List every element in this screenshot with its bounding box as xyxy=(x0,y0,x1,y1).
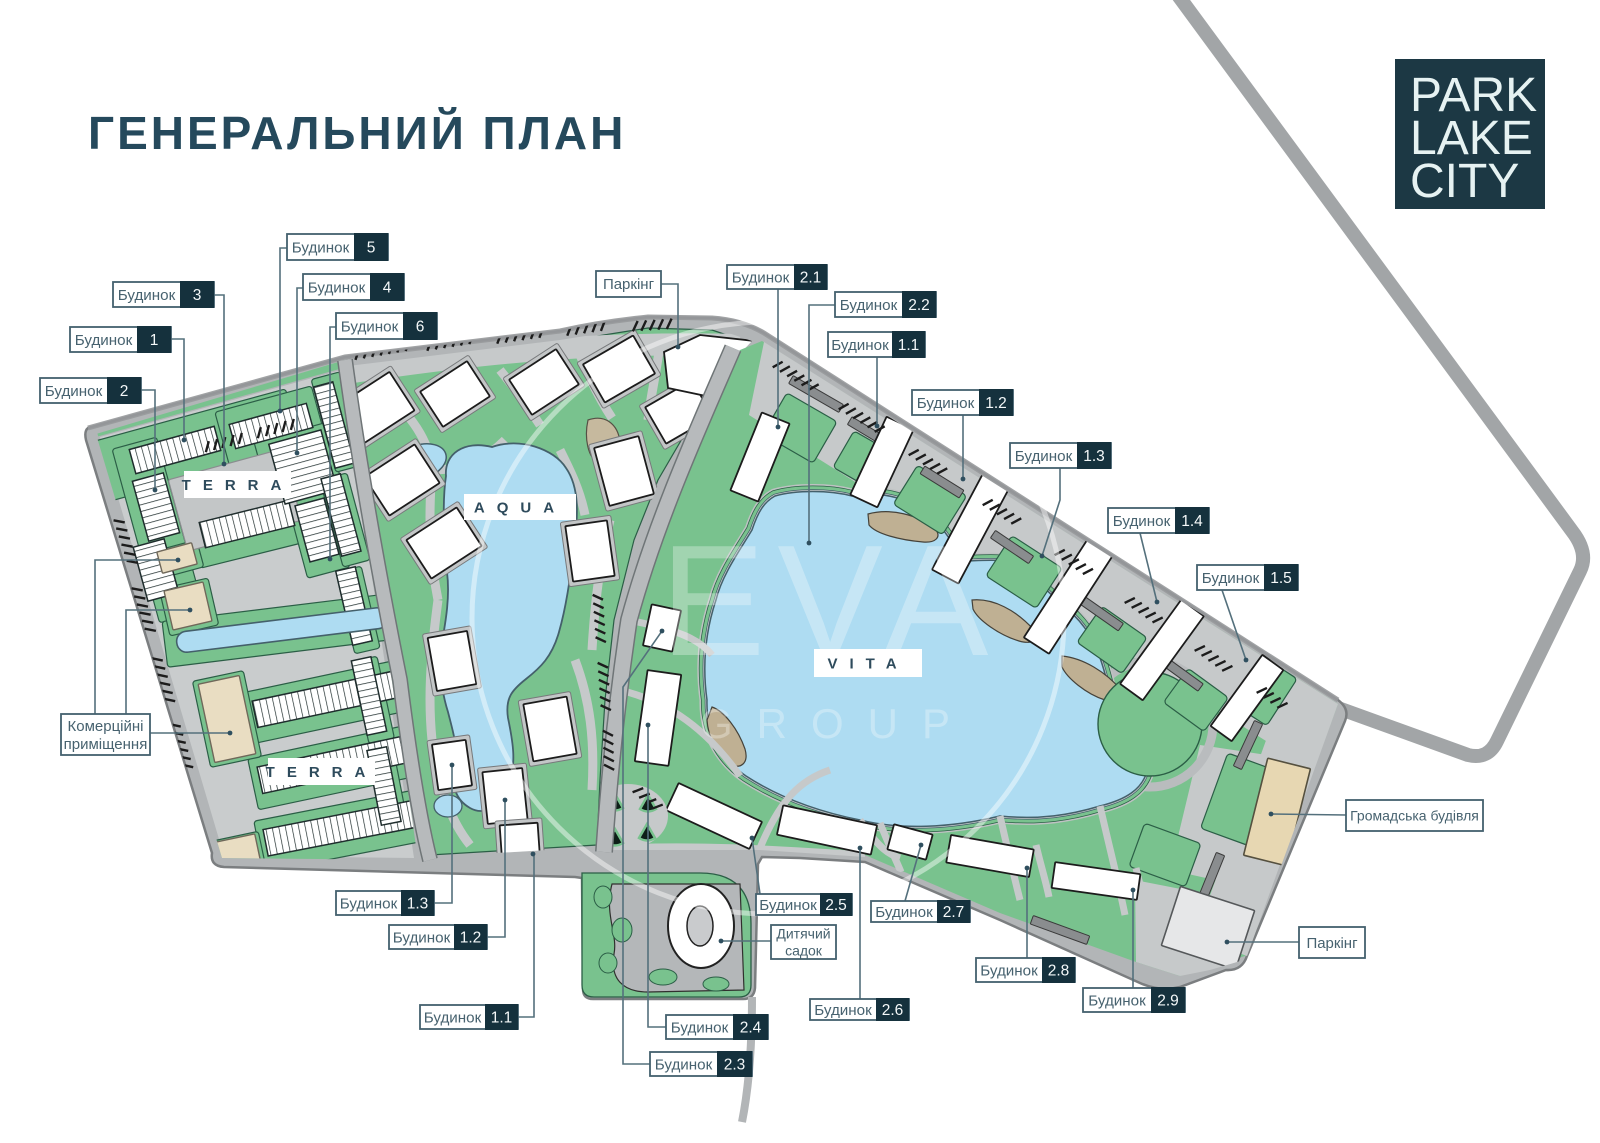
svg-text:TERRA: TERRA xyxy=(182,477,294,494)
svg-text:Будинок: Будинок xyxy=(118,287,176,304)
svg-text:Будинок: Будинок xyxy=(308,279,366,296)
svg-text:Будинок: Будинок xyxy=(341,318,399,335)
svg-text:Паркінг: Паркінг xyxy=(603,276,655,293)
svg-text:Будинок: Будинок xyxy=(1202,570,1260,587)
svg-text:4: 4 xyxy=(383,279,392,296)
svg-text:Паркінг: Паркінг xyxy=(1306,935,1358,952)
svg-text:Будинок: Будинок xyxy=(732,269,790,286)
svg-text:Громадська будівля: Громадська будівля xyxy=(1350,807,1479,823)
svg-text:Будинок: Будинок xyxy=(1113,513,1171,530)
svg-text:2.2: 2.2 xyxy=(908,297,930,314)
svg-text:AQUA: AQUA xyxy=(474,499,566,516)
svg-text:1.5: 1.5 xyxy=(1270,570,1292,587)
svg-text:Будинок: Будинок xyxy=(840,297,898,314)
svg-text:GROUP: GROUP xyxy=(700,700,974,747)
svg-text:приміщення: приміщення xyxy=(64,736,148,753)
svg-text:Будинок: Будинок xyxy=(831,337,889,354)
svg-text:2: 2 xyxy=(120,383,129,400)
svg-text:6: 6 xyxy=(416,318,425,335)
svg-text:Будинок: Будинок xyxy=(45,383,103,400)
svg-text:Будинок: Будинок xyxy=(393,929,451,946)
svg-text:2.8: 2.8 xyxy=(1048,962,1070,979)
svg-text:2.9: 2.9 xyxy=(1157,992,1179,1009)
svg-text:Будинок: Будинок xyxy=(1015,448,1073,465)
svg-text:1.4: 1.4 xyxy=(1181,513,1203,530)
svg-text:Будинок: Будинок xyxy=(671,1019,729,1036)
svg-text:Будинок: Будинок xyxy=(980,962,1038,979)
svg-text:Будинок: Будинок xyxy=(759,897,817,914)
svg-text:1.3: 1.3 xyxy=(407,895,429,912)
svg-text:2.7: 2.7 xyxy=(943,904,965,921)
svg-text:Будинок: Будинок xyxy=(814,1002,872,1019)
svg-text:Будинок: Будинок xyxy=(917,395,975,412)
svg-text:1.2: 1.2 xyxy=(985,395,1007,412)
svg-text:VITA: VITA xyxy=(827,655,908,672)
svg-text:1: 1 xyxy=(150,332,159,349)
svg-text:5: 5 xyxy=(367,239,376,256)
svg-text:TERRA: TERRA xyxy=(266,764,378,781)
svg-text:Дитячий: Дитячий xyxy=(776,925,830,941)
svg-text:1.2: 1.2 xyxy=(460,929,482,946)
svg-text:2.6: 2.6 xyxy=(882,1002,904,1019)
svg-text:Будинок: Будинок xyxy=(1088,992,1146,1009)
svg-text:Будинок: Будинок xyxy=(292,239,350,256)
svg-text:садок: садок xyxy=(785,942,823,958)
svg-text:Будинок: Будинок xyxy=(340,895,398,912)
svg-text:1.1: 1.1 xyxy=(491,1009,513,1026)
svg-text:2.1: 2.1 xyxy=(800,269,822,286)
svg-text:Будинок: Будинок xyxy=(655,1056,713,1073)
svg-text:2.3: 2.3 xyxy=(724,1056,746,1073)
svg-text:3: 3 xyxy=(193,287,202,304)
svg-text:2.4: 2.4 xyxy=(740,1019,762,1036)
svg-text:Комерційні: Комерційні xyxy=(68,718,144,735)
svg-text:Будинок: Будинок xyxy=(875,904,933,921)
svg-text:Будинок: Будинок xyxy=(424,1009,482,1026)
svg-text:1.1: 1.1 xyxy=(898,337,920,354)
svg-text:1.3: 1.3 xyxy=(1083,448,1105,465)
svg-text:CITY: CITY xyxy=(1410,155,1519,208)
svg-text:2.5: 2.5 xyxy=(825,897,847,914)
svg-text:ГЕНЕРАЛЬНИЙ ПЛАН: ГЕНЕРАЛЬНИЙ ПЛАН xyxy=(88,107,626,159)
svg-text:Будинок: Будинок xyxy=(75,332,133,349)
